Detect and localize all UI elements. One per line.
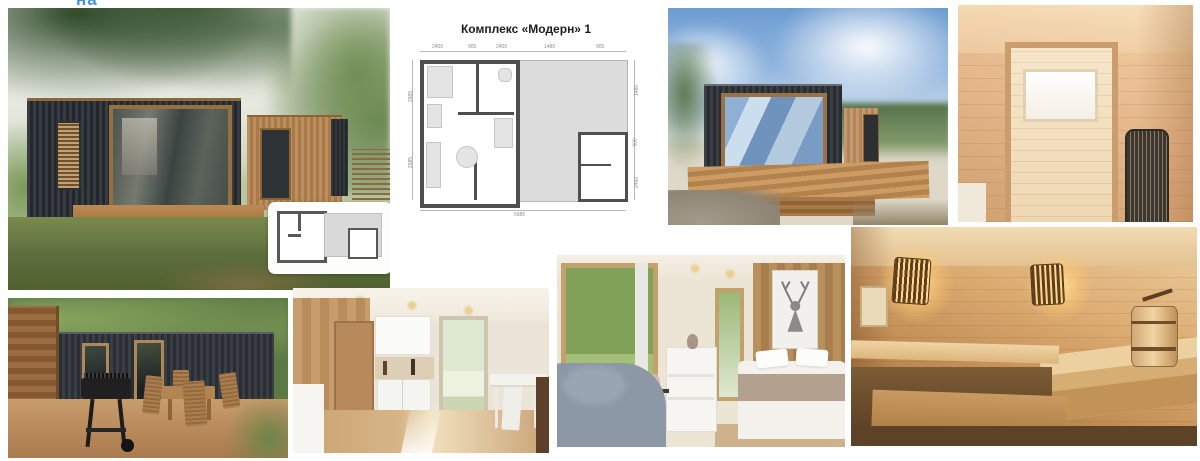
photo-exterior-patio[interactable] [8, 298, 288, 458]
floor-sliver [958, 183, 986, 222]
photo-exterior-deck[interactable] [668, 8, 948, 225]
dark-floor [851, 426, 1197, 446]
plan-sofa [426, 142, 441, 188]
plan-bed [427, 66, 453, 98]
module-window [260, 128, 291, 200]
armchair-cushion [563, 366, 626, 404]
plan-wall [458, 112, 514, 115]
drawer-line [668, 397, 714, 400]
table-leg [207, 399, 211, 420]
module-end-panel [331, 119, 348, 195]
bbq-grill [81, 378, 131, 399]
ceiling-spotlight [462, 305, 475, 317]
bush [226, 394, 288, 458]
pillow [755, 348, 788, 368]
inset-wall [298, 213, 301, 231]
white-chair [501, 380, 522, 431]
photo-interior-doorway[interactable] [958, 5, 1193, 222]
slat-window [56, 121, 81, 190]
deer-poster [772, 270, 819, 349]
bottle [383, 361, 387, 376]
plan-toilet [498, 68, 512, 82]
slatted-sconce [891, 256, 931, 304]
bbq-shelf [86, 428, 125, 432]
bbq-wheel [121, 439, 134, 452]
folding-chair [183, 380, 208, 426]
plan-wardrobe [427, 104, 442, 128]
pine-branches [8, 8, 291, 115]
gravel [668, 190, 780, 225]
collage-canvas: на Комплекс «Модерн» 1 [0, 0, 1200, 461]
photo-interior-kitchen[interactable] [293, 288, 549, 453]
ceiling-spotlight [689, 263, 701, 275]
dirt [853, 199, 948, 225]
dark-corner [536, 377, 549, 453]
sauna-bucket [1131, 306, 1178, 367]
table-leg [495, 385, 498, 428]
plan-wall [476, 62, 479, 112]
small-window [1023, 69, 1098, 122]
dimension-label: 2400 [432, 45, 443, 50]
inset-rooms [277, 211, 327, 263]
dimension-line [420, 210, 626, 211]
floor-plan-title: Комплекс «Модерн» 1 [404, 22, 648, 36]
module-door [863, 114, 879, 162]
ceiling-spotlight [724, 268, 736, 280]
table-leg [168, 399, 172, 420]
floor-plan[interactable]: Комплекс «Модерн» 1 2400 900 2400 1480 9… [404, 20, 648, 238]
floor-plan-drawing: 2400 900 2400 1480 900 5985 2985 2985 14… [410, 44, 642, 234]
dimension-label: 900 [634, 138, 639, 146]
floor-plan-inset-card [268, 202, 390, 274]
bucket-hoop [1131, 321, 1176, 324]
drawer-line [668, 374, 714, 377]
photo-interior-sauna[interactable] [851, 227, 1197, 446]
dimension-label: 1480 [544, 45, 555, 50]
cropped-text-fragment: на [76, 0, 98, 10]
photo-exterior-main[interactable] [8, 8, 390, 290]
deer-icon [773, 271, 818, 348]
dimension-label: 900 [596, 45, 604, 50]
dimension-label: 1480 [635, 85, 640, 96]
upper-cabinet [375, 316, 431, 359]
inset-wall [288, 234, 301, 237]
wall-vent [860, 286, 888, 327]
glass-reflection [122, 118, 156, 175]
pillow [795, 348, 828, 367]
plan-wall [581, 164, 611, 166]
plan-kitchen-counter [494, 118, 513, 148]
blanket [738, 374, 845, 401]
bucket-hoop [1131, 347, 1176, 350]
slatted-sconce [1030, 263, 1065, 306]
vase [687, 334, 699, 349]
dimension-label: 2985 [409, 157, 414, 168]
bed-corner [293, 384, 324, 453]
plan-sauna-unit [578, 132, 628, 202]
dimension-label: 900 [468, 45, 476, 50]
photo-interior-bedroom[interactable] [557, 255, 845, 447]
doorway [1005, 42, 1118, 222]
sauna-heater [1125, 129, 1169, 222]
inset-sauna-room [348, 228, 378, 259]
dimension-label: 2400 [496, 45, 507, 50]
dresser [666, 347, 717, 432]
dimension-label: 2400 [635, 177, 640, 188]
dimension-label: 2985 [409, 91, 414, 102]
fence [352, 149, 390, 200]
dimension-label: 5985 [514, 213, 525, 218]
dimension-line [412, 60, 413, 200]
dimension-line [420, 51, 626, 52]
bottle [411, 359, 415, 376]
plan-table [456, 146, 478, 168]
corner-glazing [109, 105, 232, 217]
